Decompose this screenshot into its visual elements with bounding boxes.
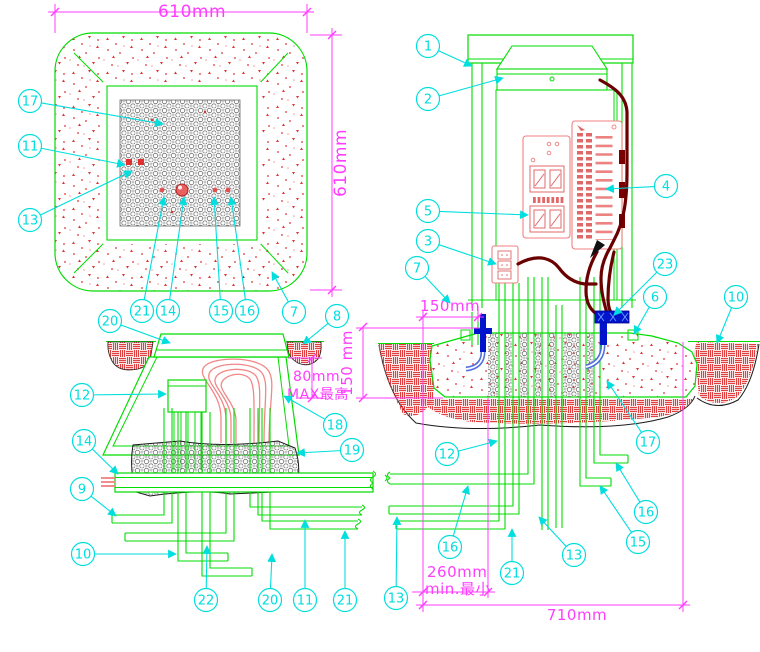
callout-number: 10: [75, 548, 92, 563]
callout-number: 19: [344, 444, 361, 459]
callout-number: 7: [413, 262, 421, 277]
plan-view: [55, 33, 307, 291]
callout-number: 6: [651, 291, 659, 306]
callout-number: 17: [640, 436, 657, 451]
callout: 20: [259, 554, 282, 612]
callout-leader: [600, 486, 632, 532]
callout-number: 13: [566, 549, 583, 564]
callout: 19: [297, 439, 364, 462]
callout-number: 13: [388, 592, 405, 607]
callout: 10: [72, 543, 177, 566]
callout-number: 8: [333, 310, 341, 325]
callout-leader: [634, 307, 649, 334]
callout-number: 20: [102, 315, 119, 330]
dimension-label: min.最小: [425, 580, 491, 598]
callout-leader: [439, 78, 503, 96]
callout: 16: [439, 486, 469, 559]
callout-leader: [438, 51, 472, 66]
callout-number: 15: [630, 536, 647, 551]
callout-number: 17: [22, 95, 39, 110]
callout-number: 21: [134, 305, 151, 320]
callout-leader: [616, 463, 640, 502]
outlet: [492, 246, 518, 283]
callout: 6: [634, 286, 667, 335]
callout-number: 11: [297, 594, 314, 609]
callout-number: 14: [160, 305, 177, 320]
callout: 10: [717, 286, 748, 344]
callout-number: 16: [442, 541, 459, 556]
callout-number: 12: [439, 448, 456, 463]
callout-number: 5: [424, 205, 432, 220]
dimension-label: MAX最高: [287, 386, 349, 403]
callout: 11: [294, 520, 317, 612]
dimension-label: 80mm: [293, 369, 340, 385]
callout: 13: [385, 517, 408, 610]
callout: 21: [334, 531, 357, 612]
callout-number: 13: [22, 214, 39, 229]
callout-leader: [717, 308, 732, 343]
callout-number: 23: [657, 258, 674, 273]
dimension-label: 610mm: [158, 2, 226, 22]
pavement-hatch-right: [287, 342, 321, 365]
dimension-label: 610mm: [331, 129, 351, 197]
dimension-label: 150mm: [420, 297, 480, 315]
callout: 22: [195, 546, 218, 612]
technical-drawing: 610mm610mm150mm150 mm80mmMAX最高260mmmin.最…: [0, 0, 760, 652]
pavement-hatch-left: [378, 344, 434, 416]
callout-number: 16: [239, 305, 256, 320]
cabinet-hood: [497, 46, 607, 69]
callout-leader: [206, 546, 207, 589]
callout: 16: [616, 463, 658, 524]
callout-leader: [458, 441, 497, 451]
callout-number: 1: [424, 40, 432, 55]
callout-leader: [439, 211, 528, 215]
junction-box: [168, 380, 206, 412]
dimension-label: 260mm: [427, 563, 487, 581]
callout-number: 11: [22, 140, 39, 155]
callout-number: 10: [728, 291, 745, 306]
callout: 21: [501, 529, 524, 585]
callout: 1: [417, 35, 473, 67]
callout-leader: [91, 496, 116, 516]
callout-leader: [439, 245, 496, 264]
callout-number: 2: [424, 93, 432, 108]
callout-number: 3: [424, 235, 432, 250]
handhole-cover: [154, 334, 289, 357]
pavement-hatch-right: [695, 342, 758, 403]
callout-number: 7: [290, 306, 298, 321]
callout-number: 21: [504, 567, 521, 582]
callout-number: 15: [213, 305, 230, 320]
callout: 9: [71, 478, 117, 517]
callout-number: 22: [198, 594, 215, 609]
callout-number: 14: [76, 435, 93, 450]
callout-number: 21: [337, 594, 354, 609]
callout: 2: [417, 78, 504, 111]
main-duct: [101, 471, 376, 492]
callout-number: 18: [327, 419, 344, 434]
callout: 23: [614, 253, 677, 316]
callout-leader: [303, 323, 328, 344]
callout-number: 4: [662, 180, 670, 195]
callout: 3: [417, 230, 497, 265]
dimension-label: 150 mm: [338, 330, 356, 396]
callout-leader: [270, 554, 272, 589]
dimension-label: 710mm: [547, 606, 607, 624]
callout-number: 12: [74, 389, 91, 404]
callout-leader: [297, 451, 341, 453]
duct-cable-stripes: [101, 478, 115, 486]
power-supply-panel: [523, 136, 570, 238]
callout-number: 16: [638, 506, 655, 521]
callout-number: 9: [78, 483, 86, 498]
callout-number: 20: [262, 594, 279, 609]
cad-drawing-canvas: 610mm610mm150mm150 mm80mmMAX最高260mmmin.最…: [0, 0, 760, 652]
